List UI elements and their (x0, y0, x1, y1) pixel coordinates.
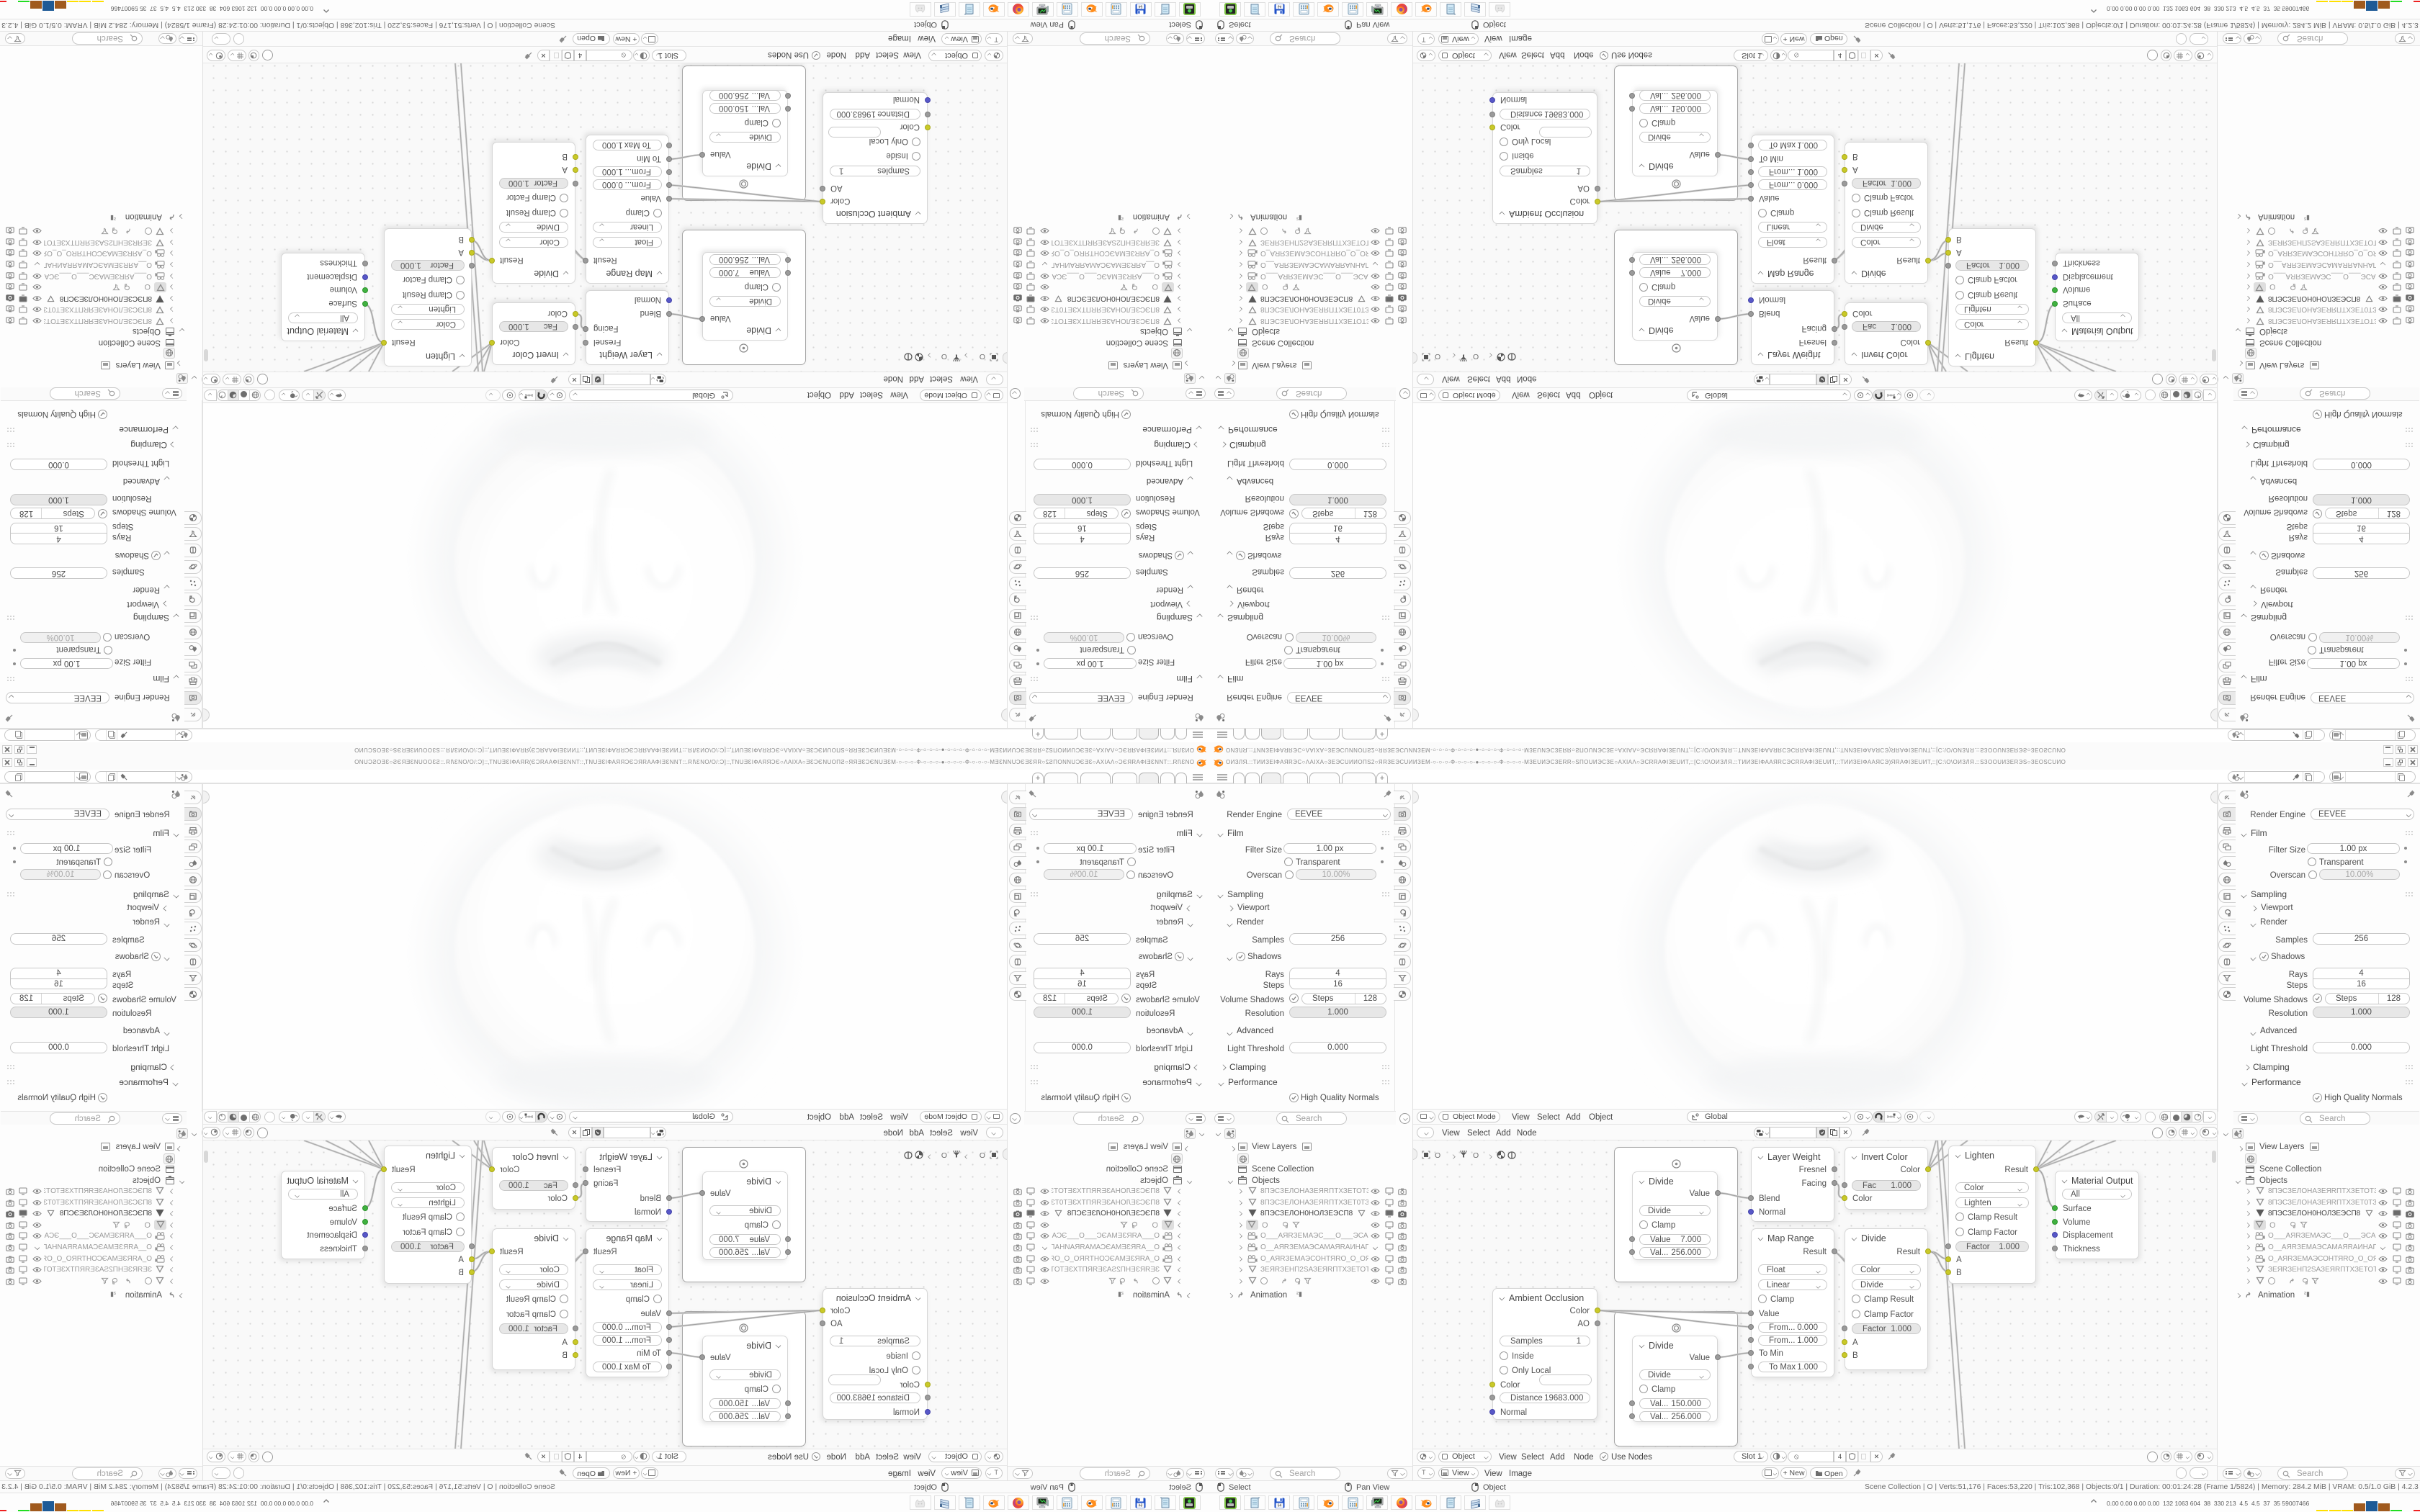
svg-text:64: 64 (1277, 1503, 1281, 1508)
svg-text:64: 64 (1139, 4, 1143, 9)
svg-text:64: 64 (1139, 1503, 1143, 1508)
svg-text:64: 64 (1277, 4, 1281, 9)
